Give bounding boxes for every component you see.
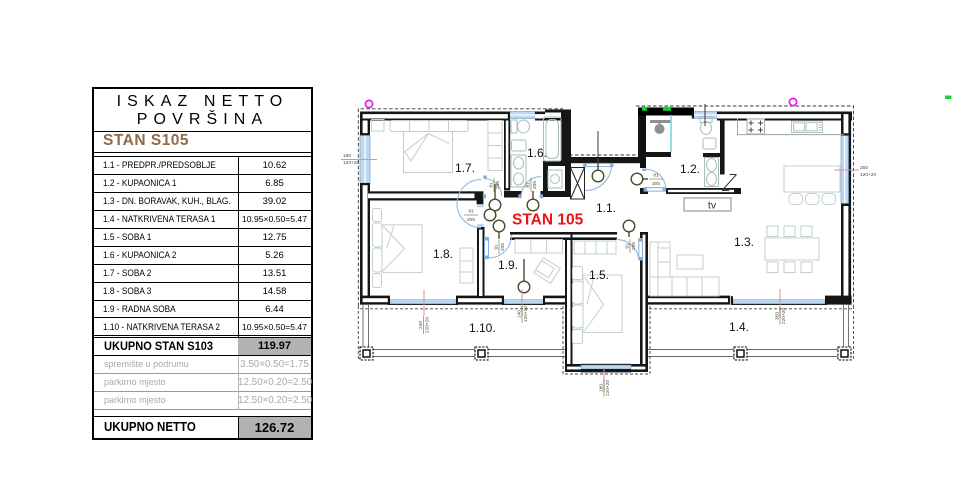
svg-text:91: 91 xyxy=(468,209,474,215)
svg-text:180: 180 xyxy=(599,384,605,392)
svg-text:81: 81 xyxy=(653,173,659,179)
svg-text:1.4.: 1.4. xyxy=(729,320,749,334)
svg-text:91: 91 xyxy=(625,243,631,249)
svg-text:1.10.: 1.10. xyxy=(469,321,496,335)
svg-text:140: 140 xyxy=(517,310,523,318)
svg-text:120+20: 120+20 xyxy=(860,172,876,178)
svg-text:120+20: 120+20 xyxy=(343,160,359,166)
svg-text:180: 180 xyxy=(343,153,351,159)
svg-text:120+20: 120+20 xyxy=(605,380,611,396)
svg-text:1.2.: 1.2. xyxy=(680,162,700,176)
svg-text:220+20: 220+20 xyxy=(781,308,787,324)
svg-text:350: 350 xyxy=(775,312,781,320)
svg-text:STAN 105: STAN 105 xyxy=(512,212,584,229)
svg-text:1.9.: 1.9. xyxy=(498,258,518,272)
svg-text:1.6.: 1.6. xyxy=(527,146,547,160)
svg-text:1.7.: 1.7. xyxy=(455,161,475,175)
svg-text:120+20: 120+20 xyxy=(523,306,529,322)
svg-text:260: 260 xyxy=(860,165,868,171)
svg-text:205: 205 xyxy=(467,217,475,223)
svg-text:240: 240 xyxy=(418,321,424,329)
svg-text:205: 205 xyxy=(495,181,501,189)
svg-text:1.8.: 1.8. xyxy=(433,247,453,261)
svg-text:205: 205 xyxy=(532,181,538,189)
svg-text:220+20: 220+20 xyxy=(425,317,431,333)
svg-text:1.3.: 1.3. xyxy=(734,235,754,249)
svg-text:91: 91 xyxy=(494,244,500,250)
svg-text:tv: tv xyxy=(708,200,717,212)
svg-text:81: 81 xyxy=(489,182,495,188)
svg-text:1.5.: 1.5. xyxy=(589,268,609,282)
svg-text:205: 205 xyxy=(500,243,506,251)
svg-text:205: 205 xyxy=(652,181,660,187)
svg-text:205: 205 xyxy=(631,242,637,250)
svg-text:81: 81 xyxy=(526,182,532,188)
svg-text:1.1.: 1.1. xyxy=(596,201,616,215)
